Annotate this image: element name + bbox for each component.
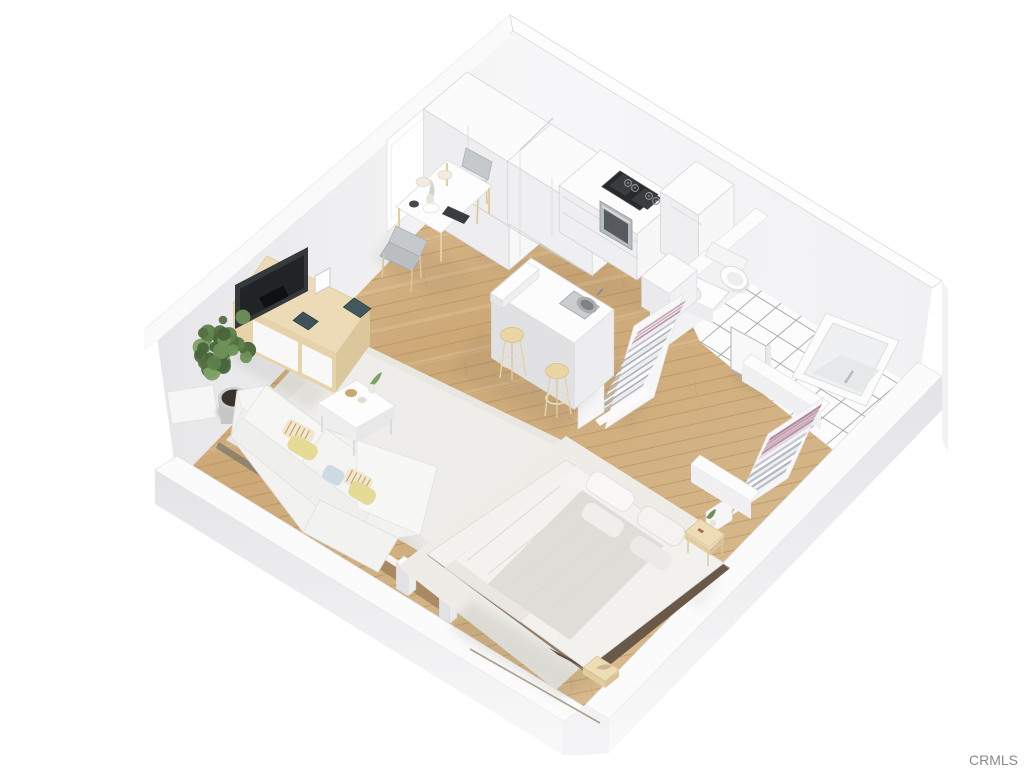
svg-text:CRMLS: CRMLS — [969, 752, 1018, 768]
